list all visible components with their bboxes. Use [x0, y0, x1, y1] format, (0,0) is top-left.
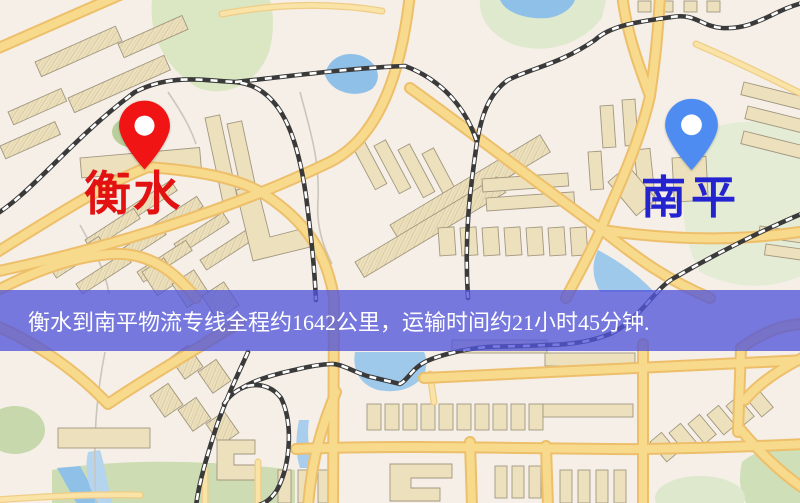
destination-pin-hole	[681, 114, 702, 135]
logistics-route-map: 衡水 南平 衡水到南平物流专线全程约1642公里，运输时间约21小时45分钟.	[0, 0, 800, 503]
origin-pin-icon	[117, 99, 172, 171]
origin-pin-hole	[134, 116, 154, 136]
origin-label: 衡水	[84, 172, 182, 219]
destination-label: 南平	[641, 176, 741, 221]
map-background	[0, 0, 800, 503]
route-info-banner: 衡水到南平物流专线全程约1642公里，运输时间约21小时45分钟.	[0, 290, 800, 351]
route-info-text: 衡水到南平物流专线全程约1642公里，运输时间约21小时45分钟.	[0, 305, 650, 337]
destination-pin-icon	[663, 97, 720, 172]
